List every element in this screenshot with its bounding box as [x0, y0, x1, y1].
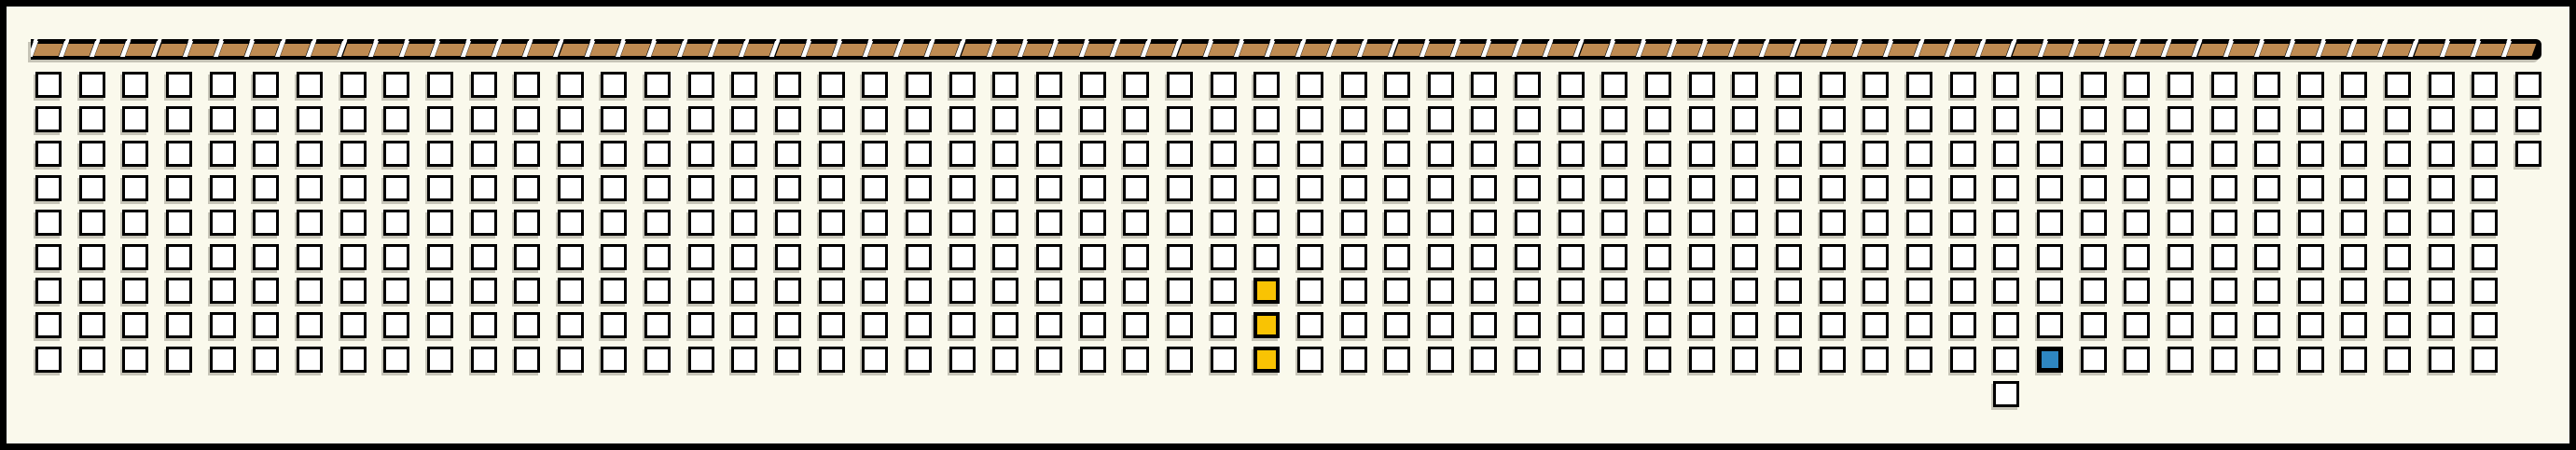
- seat-cell[interactable]: [1906, 278, 1932, 304]
- seat-cell[interactable]: [1297, 106, 1323, 132]
- seat-cell[interactable]: [731, 210, 757, 236]
- seat-cell[interactable]: [471, 72, 497, 98]
- seat-cell[interactable]: [1558, 175, 1585, 201]
- seat-cell[interactable]: [2254, 347, 2280, 373]
- seat-cell[interactable]: [1253, 175, 1280, 201]
- seat-cell[interactable]: [775, 106, 801, 132]
- seat-cell[interactable]: [2472, 106, 2498, 132]
- seat-cell[interactable]: [862, 278, 888, 304]
- seat-cell[interactable]: [1297, 141, 1323, 167]
- seat-cell[interactable]: [2037, 210, 2063, 236]
- seat-cell[interactable]: [1820, 141, 1846, 167]
- seat-cell[interactable]: [558, 175, 584, 201]
- seat-cell[interactable]: [514, 72, 540, 98]
- seat-cell[interactable]: [2341, 244, 2367, 270]
- seat-cell[interactable]: [514, 106, 540, 132]
- seat-cell[interactable]: [1123, 141, 1149, 167]
- seat-cell[interactable]: [1558, 278, 1585, 304]
- seat-cell[interactable]: [166, 210, 192, 236]
- seat-cell[interactable]: [1297, 312, 1323, 338]
- seat-cell[interactable]: [210, 347, 236, 373]
- seat-cell[interactable]: [35, 278, 62, 304]
- seat-cell[interactable]: [35, 141, 62, 167]
- seat-cell[interactable]: [1253, 244, 1280, 270]
- seat-cell[interactable]: [1863, 175, 1889, 201]
- seat-cell[interactable]: [2429, 141, 2455, 167]
- seat-cell[interactable]: [297, 175, 323, 201]
- seat-cell[interactable]: [731, 244, 757, 270]
- seat-cell[interactable]: [427, 244, 453, 270]
- seat-cell[interactable]: [1601, 244, 1627, 270]
- seat-cell[interactable]: [2429, 106, 2455, 132]
- seat-cell[interactable]: [1732, 347, 1758, 373]
- seat-cell[interactable]: [644, 175, 671, 201]
- seat-cell[interactable]: [906, 347, 932, 373]
- seat-cell[interactable]: [1993, 210, 2019, 236]
- seat-cell[interactable]: [949, 312, 976, 338]
- seat-cell[interactable]: [1167, 141, 1193, 167]
- seat-cell[interactable]: [1732, 244, 1758, 270]
- seat-cell[interactable]: [862, 347, 888, 373]
- seat-cell[interactable]: [2429, 278, 2455, 304]
- seat-cell[interactable]: [1428, 244, 1454, 270]
- seat-cell[interactable]: [1993, 312, 2019, 338]
- seat-cell[interactable]: [514, 312, 540, 338]
- seat-cell[interactable]: [2211, 175, 2237, 201]
- seat-cell[interactable]: [862, 175, 888, 201]
- seat-cell[interactable]: [210, 244, 236, 270]
- seat-cell[interactable]: [1384, 106, 1410, 132]
- seat-cell[interactable]: [1167, 210, 1193, 236]
- seat-cell-blue[interactable]: [2037, 347, 2063, 373]
- seat-cell[interactable]: [2429, 347, 2455, 373]
- seat-cell[interactable]: [1645, 278, 1671, 304]
- seat-cell[interactable]: [1776, 278, 1802, 304]
- seat-cell[interactable]: [340, 278, 367, 304]
- seat-cell[interactable]: [253, 347, 279, 373]
- seat-cell[interactable]: [1167, 72, 1193, 98]
- seat-cell[interactable]: [1384, 312, 1410, 338]
- seat-cell[interactable]: [297, 312, 323, 338]
- seat-cell[interactable]: [1776, 210, 1802, 236]
- seat-cell[interactable]: [253, 244, 279, 270]
- seat-cell[interactable]: [383, 141, 409, 167]
- seat-cell[interactable]: [819, 347, 845, 373]
- seat-cell[interactable]: [2211, 141, 2237, 167]
- seat-cell[interactable]: [1993, 106, 2019, 132]
- seat-cell[interactable]: [2298, 210, 2324, 236]
- seat-cell[interactable]: [906, 106, 932, 132]
- seat-cell[interactable]: [1689, 210, 1715, 236]
- seat-cell[interactable]: [819, 312, 845, 338]
- seat-cell[interactable]: [1428, 312, 1454, 338]
- seat-cell[interactable]: [558, 312, 584, 338]
- seat-cell[interactable]: [1776, 244, 1802, 270]
- seat-cell[interactable]: [1820, 175, 1846, 201]
- seat-cell[interactable]: [1428, 175, 1454, 201]
- seat-cell[interactable]: [1689, 312, 1715, 338]
- seat-cell[interactable]: [1253, 210, 1280, 236]
- seat-cell[interactable]: [1384, 175, 1410, 201]
- seat-cell[interactable]: [1384, 210, 1410, 236]
- seat-cell[interactable]: [906, 278, 932, 304]
- seat-cell[interactable]: [340, 312, 367, 338]
- seat-cell[interactable]: [2515, 72, 2541, 98]
- seat-cell[interactable]: [1428, 72, 1454, 98]
- seat-cell[interactable]: [601, 141, 627, 167]
- seat-cell[interactable]: [1341, 106, 1367, 132]
- seat-cell[interactable]: [35, 106, 62, 132]
- seat-cell[interactable]: [1297, 278, 1323, 304]
- seat-cell[interactable]: [1645, 106, 1671, 132]
- seat-cell[interactable]: [2429, 175, 2455, 201]
- seat-cell[interactable]: [949, 106, 976, 132]
- seat-cell[interactable]: [688, 175, 714, 201]
- seat-cell[interactable]: [1732, 210, 1758, 236]
- seat-cell[interactable]: [1341, 278, 1367, 304]
- seat-cell[interactable]: [35, 210, 62, 236]
- seat-cell[interactable]: [340, 72, 367, 98]
- seat-cell[interactable]: [79, 106, 105, 132]
- seat-cell[interactable]: [1515, 278, 1541, 304]
- seat-cell[interactable]: [2341, 72, 2367, 98]
- seat-cell[interactable]: [1036, 175, 1062, 201]
- seat-cell[interactable]: [253, 141, 279, 167]
- seat-cell[interactable]: [1515, 72, 1541, 98]
- seat-cell[interactable]: [1732, 175, 1758, 201]
- seat-cell[interactable]: [1689, 106, 1715, 132]
- seat-cell[interactable]: [210, 72, 236, 98]
- seat-cell[interactable]: [1428, 141, 1454, 167]
- seat-cell[interactable]: [2167, 175, 2194, 201]
- seat-cell[interactable]: [1080, 72, 1106, 98]
- seat-cell[interactable]: [1601, 347, 1627, 373]
- seat-cell[interactable]: [79, 347, 105, 373]
- seat-cell[interactable]: [2037, 244, 2063, 270]
- seat-cell[interactable]: [1471, 278, 1497, 304]
- seat-cell[interactable]: [2167, 141, 2194, 167]
- seat-cell[interactable]: [340, 141, 367, 167]
- seat-cell[interactable]: [2037, 312, 2063, 338]
- seat-cell[interactable]: [2081, 175, 2107, 201]
- seat-cell[interactable]: [2211, 210, 2237, 236]
- seat-cell[interactable]: [558, 141, 584, 167]
- seat-cell[interactable]: [1993, 72, 2019, 98]
- seat-cell[interactable]: [775, 72, 801, 98]
- seat-cell[interactable]: [1515, 210, 1541, 236]
- seat-cell[interactable]: [122, 244, 148, 270]
- seat-cell[interactable]: [775, 278, 801, 304]
- seat-cell[interactable]: [1341, 175, 1367, 201]
- seat-cell[interactable]: [210, 141, 236, 167]
- seat-cell[interactable]: [514, 210, 540, 236]
- seat-cell[interactable]: [2124, 312, 2150, 338]
- seat-cell[interactable]: [2298, 141, 2324, 167]
- seat-cell[interactable]: [1080, 210, 1106, 236]
- seat-cell[interactable]: [471, 141, 497, 167]
- seat-cell[interactable]: [601, 278, 627, 304]
- seat-cell[interactable]: [427, 210, 453, 236]
- seat-cell[interactable]: [297, 244, 323, 270]
- seat-cell[interactable]: [2341, 106, 2367, 132]
- seat-cell[interactable]: [210, 278, 236, 304]
- seat-cell[interactable]: [2429, 244, 2455, 270]
- seat-cell[interactable]: [1080, 244, 1106, 270]
- seat-cell[interactable]: [1471, 347, 1497, 373]
- seat-cell[interactable]: [819, 244, 845, 270]
- seat-cell[interactable]: [427, 72, 453, 98]
- seat-cell[interactable]: [2167, 72, 2194, 98]
- seat-cell[interactable]: [906, 244, 932, 270]
- seat-cell[interactable]: [253, 278, 279, 304]
- seat-cell[interactable]: [775, 175, 801, 201]
- seat-cell[interactable]: [601, 106, 627, 132]
- seat-cell[interactable]: [1993, 347, 2019, 373]
- seat-cell[interactable]: [2211, 278, 2237, 304]
- seat-cell[interactable]: [1776, 347, 1802, 373]
- seat-cell[interactable]: [383, 106, 409, 132]
- seat-cell[interactable]: [1253, 141, 1280, 167]
- seat-cell[interactable]: [731, 347, 757, 373]
- seat-cell[interactable]: [731, 106, 757, 132]
- seat-cell[interactable]: [1515, 312, 1541, 338]
- seat-cell[interactable]: [297, 141, 323, 167]
- seat-cell[interactable]: [1820, 210, 1846, 236]
- seat-cell[interactable]: [471, 175, 497, 201]
- seat-cell[interactable]: [35, 347, 62, 373]
- seat-cell[interactable]: [1471, 141, 1497, 167]
- seat-cell[interactable]: [1950, 141, 1976, 167]
- seat-cell[interactable]: [471, 312, 497, 338]
- seat-cell[interactable]: [949, 347, 976, 373]
- seat-cell[interactable]: [166, 244, 192, 270]
- seat-cell[interactable]: [1080, 141, 1106, 167]
- seat-cell[interactable]: [1515, 106, 1541, 132]
- seat-cell[interactable]: [1036, 106, 1062, 132]
- seat-cell[interactable]: [1820, 312, 1846, 338]
- seat-cell[interactable]: [2341, 141, 2367, 167]
- seat-cell[interactable]: [2124, 347, 2150, 373]
- seat-cell[interactable]: [2124, 141, 2150, 167]
- seat-cell[interactable]: [2211, 106, 2237, 132]
- seat-cell[interactable]: [2385, 141, 2411, 167]
- seat-cell[interactable]: [1297, 210, 1323, 236]
- seat-cell[interactable]: [166, 106, 192, 132]
- seat-cell[interactable]: [1341, 141, 1367, 167]
- seat-cell[interactable]: [2385, 347, 2411, 373]
- seat-cell[interactable]: [1645, 175, 1671, 201]
- seat-cell[interactable]: [2472, 210, 2498, 236]
- seat-cell[interactable]: [210, 210, 236, 236]
- seat-cell[interactable]: [2167, 347, 2194, 373]
- seat-cell[interactable]: [1036, 210, 1062, 236]
- seat-cell[interactable]: [2167, 278, 2194, 304]
- seat-cell[interactable]: [1820, 244, 1846, 270]
- seat-cell[interactable]: [1906, 244, 1932, 270]
- seat-cell[interactable]: [79, 72, 105, 98]
- seat-cell[interactable]: [2037, 106, 2063, 132]
- seat-cell[interactable]: [2254, 141, 2280, 167]
- seat-cell[interactable]: [2124, 278, 2150, 304]
- seat-cell[interactable]: [1820, 106, 1846, 132]
- seat-cell[interactable]: [471, 244, 497, 270]
- seat-cell[interactable]: [1341, 312, 1367, 338]
- seat-cell[interactable]: [1558, 72, 1585, 98]
- seat-cell[interactable]: [122, 141, 148, 167]
- seat-cell[interactable]: [1993, 141, 2019, 167]
- seat-cell[interactable]: [1863, 312, 1889, 338]
- seat-cell[interactable]: [383, 72, 409, 98]
- seat-cell[interactable]: [1950, 244, 1976, 270]
- seat-cell[interactable]: [2124, 106, 2150, 132]
- seat-cell[interactable]: [2385, 175, 2411, 201]
- seat-cell[interactable]: [688, 141, 714, 167]
- seat-cell[interactable]: [2124, 72, 2150, 98]
- seat-cell[interactable]: [688, 347, 714, 373]
- seat-cell[interactable]: [1123, 210, 1149, 236]
- seat-cell[interactable]: [2341, 278, 2367, 304]
- seat-cell[interactable]: [471, 347, 497, 373]
- seat-cell[interactable]: [1080, 347, 1106, 373]
- seat-cell[interactable]: [2124, 210, 2150, 236]
- seat-cell[interactable]: [1167, 312, 1193, 338]
- seat-cell[interactable]: [2385, 312, 2411, 338]
- seat-cell[interactable]: [862, 210, 888, 236]
- seat-cell[interactable]: [992, 106, 1018, 132]
- seat-cell[interactable]: [1384, 72, 1410, 98]
- seat-cell[interactable]: [297, 72, 323, 98]
- seat-cell[interactable]: [775, 141, 801, 167]
- seat-cell[interactable]: [2211, 244, 2237, 270]
- seat-cell[interactable]: [644, 244, 671, 270]
- seat-cell[interactable]: [906, 72, 932, 98]
- seat-cell[interactable]: [166, 141, 192, 167]
- seat-cell[interactable]: [731, 312, 757, 338]
- seat-cell[interactable]: [1471, 106, 1497, 132]
- seat-cell[interactable]: [1993, 175, 2019, 201]
- seat-cell[interactable]: [1601, 72, 1627, 98]
- seat-cell[interactable]: [297, 347, 323, 373]
- seat-cell[interactable]: [1732, 72, 1758, 98]
- seat-cell[interactable]: [2472, 244, 2498, 270]
- seat-cell[interactable]: [2081, 210, 2107, 236]
- seat-cell[interactable]: [2385, 72, 2411, 98]
- seat-cell[interactable]: [949, 72, 976, 98]
- seat-cell[interactable]: [1601, 106, 1627, 132]
- seat-cell[interactable]: [1645, 312, 1671, 338]
- seat-cell[interactable]: [1601, 210, 1627, 236]
- seat-cell[interactable]: [644, 72, 671, 98]
- seat-cell[interactable]: [2081, 141, 2107, 167]
- seat-cell[interactable]: [1732, 141, 1758, 167]
- seat-cell[interactable]: [1776, 106, 1802, 132]
- seat-cell[interactable]: [949, 244, 976, 270]
- seat-cell[interactable]: [253, 175, 279, 201]
- seat-cell[interactable]: [1863, 141, 1889, 167]
- seat-cell-yellow[interactable]: [1253, 312, 1280, 338]
- seat-cell[interactable]: [2081, 244, 2107, 270]
- seat-cell[interactable]: [166, 278, 192, 304]
- seat-cell[interactable]: [514, 175, 540, 201]
- seat-cell[interactable]: [601, 175, 627, 201]
- seat-cell[interactable]: [1211, 347, 1237, 373]
- seat-cell[interactable]: [1123, 72, 1149, 98]
- seat-cell[interactable]: [1341, 210, 1367, 236]
- seat-cell[interactable]: [2341, 175, 2367, 201]
- seat-cell[interactable]: [2254, 312, 2280, 338]
- seat-cell[interactable]: [2341, 210, 2367, 236]
- seat-cell[interactable]: [427, 278, 453, 304]
- seat-cell[interactable]: [1036, 72, 1062, 98]
- seat-cell[interactable]: [992, 244, 1018, 270]
- seat-cell[interactable]: [1080, 278, 1106, 304]
- seat-cell[interactable]: [2211, 347, 2237, 373]
- seat-cell[interactable]: [992, 278, 1018, 304]
- seat-cell[interactable]: [1036, 244, 1062, 270]
- seat-cell[interactable]: [166, 312, 192, 338]
- seat-cell[interactable]: [2472, 312, 2498, 338]
- seat-cell[interactable]: [1645, 347, 1671, 373]
- seat-cell[interactable]: [862, 106, 888, 132]
- seat-cell[interactable]: [601, 72, 627, 98]
- seat-cell[interactable]: [1776, 141, 1802, 167]
- seat-cell[interactable]: [35, 244, 62, 270]
- seat-cell[interactable]: [122, 72, 148, 98]
- seat-cell[interactable]: [1297, 244, 1323, 270]
- seat-cell[interactable]: [2385, 210, 2411, 236]
- seat-cell[interactable]: [2167, 244, 2194, 270]
- seat-cell[interactable]: [166, 72, 192, 98]
- seat-cell[interactable]: [2254, 106, 2280, 132]
- seat-cell[interactable]: [514, 278, 540, 304]
- seat-cell[interactable]: [122, 312, 148, 338]
- seat-cell[interactable]: [122, 347, 148, 373]
- seat-cell[interactable]: [1689, 244, 1715, 270]
- seat-cell[interactable]: [210, 106, 236, 132]
- seat-cell[interactable]: [1950, 210, 1976, 236]
- seat-cell[interactable]: [819, 210, 845, 236]
- seat-cell[interactable]: [2515, 106, 2541, 132]
- seat-cell[interactable]: [2298, 312, 2324, 338]
- seat-cell-yellow[interactable]: [1253, 347, 1280, 373]
- seat-cell[interactable]: [819, 72, 845, 98]
- seat-cell[interactable]: [383, 175, 409, 201]
- seat-cell[interactable]: [601, 210, 627, 236]
- seat-cell[interactable]: [79, 312, 105, 338]
- seat-cell[interactable]: [992, 72, 1018, 98]
- seat-cell[interactable]: [558, 244, 584, 270]
- seat-cell[interactable]: [1471, 210, 1497, 236]
- seat-cell[interactable]: [2298, 72, 2324, 98]
- seat-cell[interactable]: [297, 106, 323, 132]
- seat-cell[interactable]: [2429, 312, 2455, 338]
- seat-cell[interactable]: [601, 244, 627, 270]
- seat-cell[interactable]: [2298, 175, 2324, 201]
- seat-cell[interactable]: [210, 312, 236, 338]
- seat-cell[interactable]: [2167, 312, 2194, 338]
- seat-cell[interactable]: [253, 106, 279, 132]
- seat-cell[interactable]: [731, 141, 757, 167]
- seat-cell[interactable]: [906, 175, 932, 201]
- seat-cell[interactable]: [1515, 244, 1541, 270]
- seat-cell[interactable]: [2341, 312, 2367, 338]
- seat-cell[interactable]: [862, 72, 888, 98]
- seat-cell[interactable]: [471, 278, 497, 304]
- seat-cell[interactable]: [775, 347, 801, 373]
- seat-cell[interactable]: [35, 312, 62, 338]
- seat-cell[interactable]: [1341, 72, 1367, 98]
- seat-cell[interactable]: [558, 106, 584, 132]
